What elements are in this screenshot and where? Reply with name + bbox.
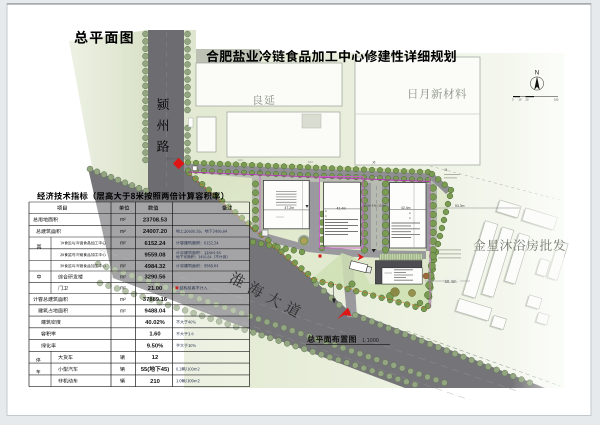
svg-text:4984.32: 4984.32: [145, 264, 166, 270]
svg-text:m²: m²: [120, 308, 126, 314]
svg-text:m²: m²: [120, 217, 126, 223]
svg-text:3290.56: 3290.56: [145, 275, 167, 281]
svg-text:6152.24: 6152.24: [145, 241, 167, 247]
svg-text:9488.04: 9488.04: [145, 308, 167, 314]
svg-text:47.2m: 47.2m: [285, 206, 295, 210]
svg-text:m²: m²: [120, 229, 126, 235]
svg-text:53.3m: 53.3m: [455, 204, 465, 208]
svg-text:100: 100: [554, 98, 559, 102]
svg-text:m²: m²: [120, 274, 126, 280]
svg-text:12: 12: [152, 355, 158, 361]
svg-text:m²: m²: [120, 264, 126, 270]
svg-text:42.4m: 42.4m: [401, 206, 411, 210]
svg-text:J9: J9: [258, 169, 262, 173]
svg-text:J4: J4: [444, 168, 448, 172]
svg-text:A: A: [409, 211, 411, 215]
svg-text:23708.53: 23708.53: [143, 217, 168, 223]
svg-text:55(地下45): 55(地下45): [141, 365, 169, 373]
svg-text:50.4m: 50.4m: [445, 279, 457, 284]
svg-text:C: C: [409, 216, 411, 220]
svg-text:43.2: 43.2: [308, 161, 313, 164]
svg-text:9.50%: 9.50%: [147, 343, 163, 349]
svg-text:40.02%: 40.02%: [145, 320, 165, 326]
svg-text:m²: m²: [120, 241, 126, 247]
svg-text:A: A: [325, 209, 327, 213]
svg-text:1.60: 1.60: [149, 332, 160, 338]
svg-text:N: N: [535, 70, 539, 77]
svg-text:21.00: 21.00: [148, 286, 163, 292]
svg-text:1:1000: 1:1000: [362, 338, 379, 344]
svg-text:9559.08: 9559.08: [145, 253, 167, 259]
svg-text:210: 210: [150, 379, 160, 385]
svg-text:C: C: [325, 214, 327, 218]
svg-text:42.4m: 42.4m: [337, 207, 347, 211]
svg-text:m²: m²: [120, 297, 126, 303]
svg-text:37889.16: 37889.16: [143, 297, 168, 303]
svg-text:24007.20: 24007.20: [143, 229, 167, 235]
svg-text:43.2: 43.2: [238, 159, 243, 162]
svg-text:m²: m²: [120, 286, 126, 292]
svg-text:J6: J6: [372, 161, 376, 165]
svg-text:10.5m 9.6m 10.5m: 10.5m 9.6m 10.5m: [364, 204, 387, 208]
